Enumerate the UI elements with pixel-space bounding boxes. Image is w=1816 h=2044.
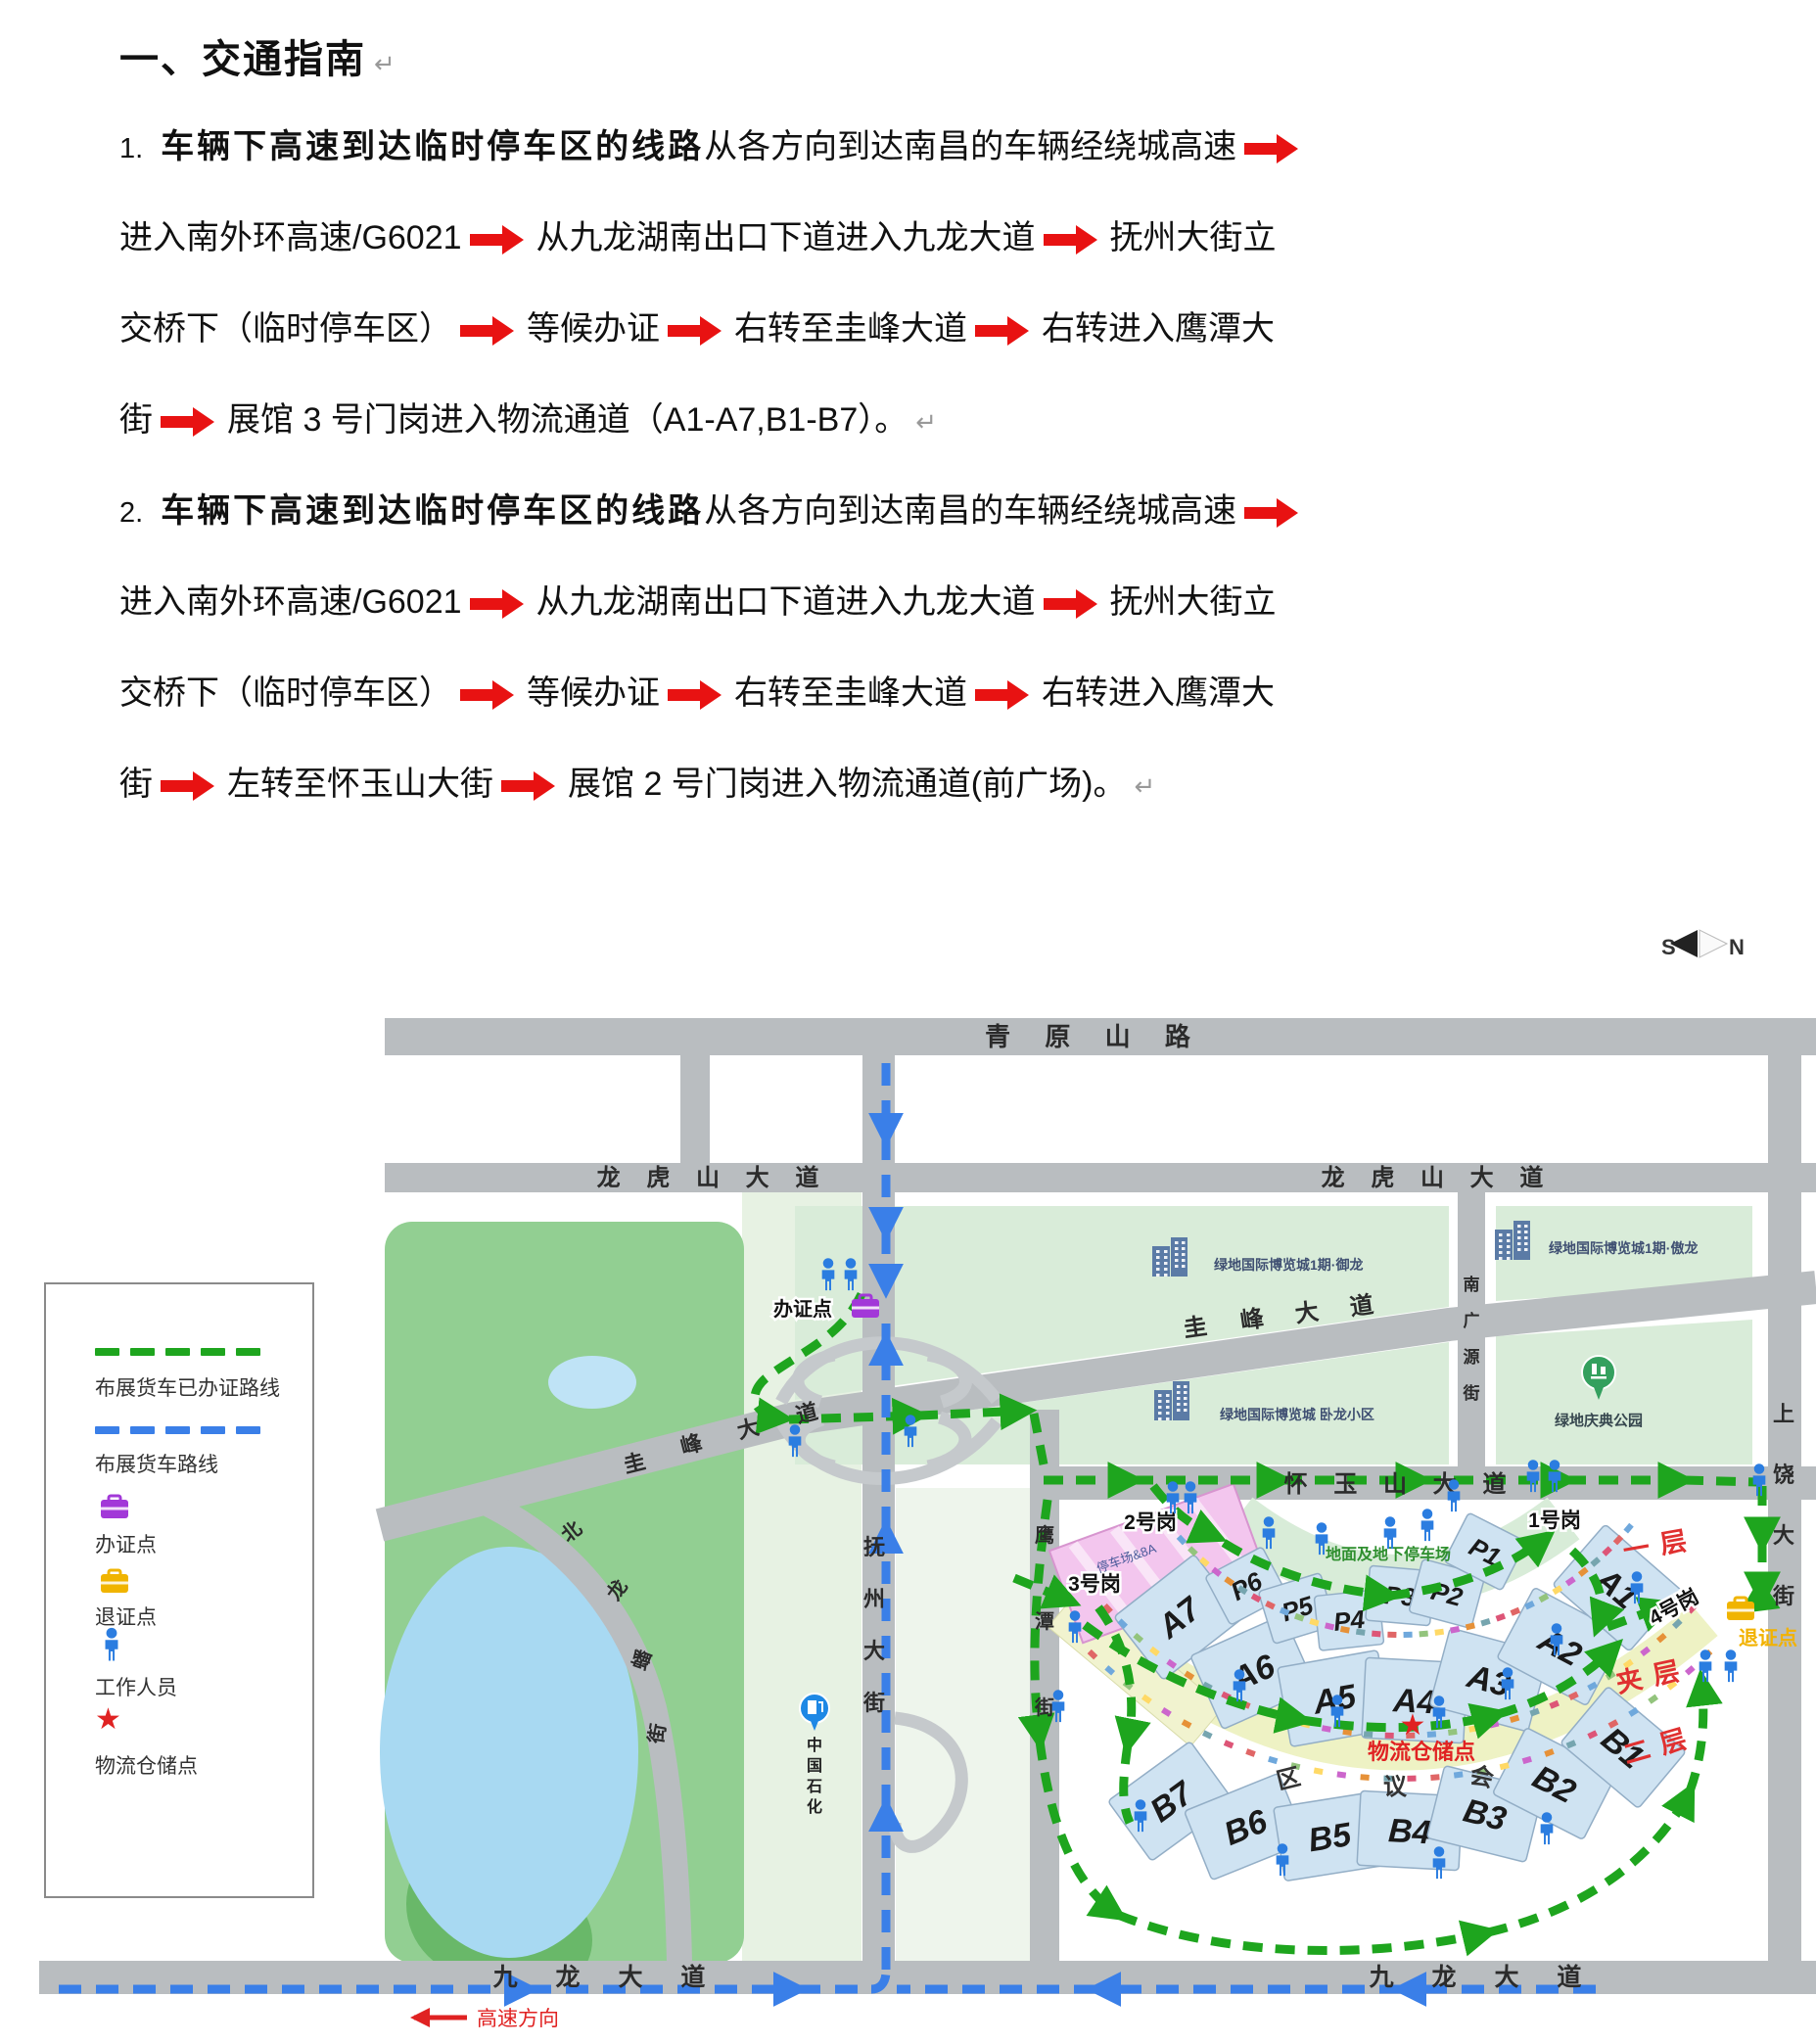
briefcase-icon (101, 1496, 128, 1518)
road-yingtan-street (1030, 1410, 1059, 1963)
road-label: 街 (643, 1722, 670, 1746)
booth-dot (1407, 1776, 1416, 1782)
booth-dot (1480, 1618, 1490, 1626)
map-text: 绿地庆典公园 (1555, 1412, 1643, 1429)
booth-dot (1404, 1632, 1413, 1638)
building-window (1175, 1241, 1179, 1244)
building-window (1164, 1262, 1168, 1265)
building-window (1156, 1256, 1160, 1259)
building-window (1156, 1262, 1160, 1265)
star-icon: ★ (95, 1705, 121, 1735)
road-label: 九 龙 大 道 (1369, 1963, 1598, 1991)
road-label: 道 (1348, 1291, 1375, 1322)
compass-south-label: S (1661, 935, 1676, 959)
building-window (1507, 1245, 1511, 1248)
booth-dot (1245, 1748, 1255, 1757)
building-window (1499, 1251, 1503, 1254)
booth-dot (1448, 1729, 1458, 1736)
building-window (1166, 1417, 1170, 1420)
booth-dot (1314, 1768, 1324, 1776)
building-window (1507, 1233, 1511, 1236)
booth-dot (1623, 1523, 1633, 1534)
building-window (1184, 1391, 1187, 1394)
building-window (1184, 1397, 1187, 1400)
staff-person-icon (1433, 1846, 1446, 1879)
dash-segment (201, 1426, 225, 1434)
residential-block (1496, 1320, 1752, 1464)
building-window (1166, 1394, 1170, 1397)
case-purple-icon (95, 1490, 134, 1530)
booth-dot (1434, 1629, 1444, 1636)
dash-segment (130, 1426, 155, 1434)
building-window (1177, 1391, 1181, 1394)
booth-dot (1419, 1631, 1427, 1638)
booth-dot (1360, 1774, 1369, 1781)
dash-segment (165, 1348, 190, 1356)
staff-person-icon (1421, 1509, 1434, 1541)
map-text: 绿地国际博览城1期·御龙 (1214, 1257, 1363, 1273)
road-label: 峰 (1238, 1305, 1266, 1335)
road-label: 青 原 山 路 (985, 1022, 1204, 1051)
staff-person-icon (1384, 1516, 1397, 1549)
booth-dot (1364, 1731, 1373, 1738)
booth-dot (1387, 1632, 1396, 1638)
building-window (1184, 1403, 1187, 1406)
building-window (1175, 1259, 1179, 1262)
case-yellow-icon (95, 1564, 134, 1604)
building-window (1507, 1251, 1511, 1254)
building-window (1182, 1259, 1186, 1262)
building-window (1158, 1394, 1162, 1397)
booth-dot (1336, 1771, 1346, 1778)
building-window (1158, 1406, 1162, 1409)
building-window (1166, 1400, 1170, 1403)
compass-north-label: N (1729, 935, 1745, 959)
legend-label: 物流仓储点 (95, 1750, 198, 1780)
building-window (1166, 1412, 1170, 1415)
booth-dot (1224, 1740, 1234, 1748)
building-window (1177, 1385, 1181, 1388)
road-label: 九 龙 大 道 (492, 1963, 722, 1991)
floor-label: 一 层 (1621, 1526, 1692, 1566)
briefcase-icon (101, 1570, 128, 1593)
building-window (1166, 1406, 1170, 1409)
building-window (1177, 1403, 1181, 1406)
booth-dot (1454, 1771, 1464, 1778)
booth-dot (1427, 1731, 1436, 1738)
booth-dot (1385, 1733, 1394, 1739)
building-window (1164, 1268, 1168, 1271)
road-label: 大 (1293, 1299, 1321, 1328)
building-window (1517, 1225, 1521, 1228)
booth-dot (1496, 1613, 1506, 1622)
legend-label: 办证点 (95, 1529, 157, 1558)
compass: S N (1661, 930, 1745, 959)
building-window (1164, 1250, 1168, 1253)
map-text: 物流仓储点 (1368, 1740, 1475, 1764)
map-legend: 布展货车已办证路线布展货车路线办证点退证点工作人员★物流仓储点 (44, 1282, 314, 1898)
building-window (1158, 1417, 1162, 1420)
building-window (1517, 1231, 1521, 1233)
dash-segment (236, 1348, 260, 1356)
building-window (1507, 1257, 1511, 1260)
road-shangrao-street (1768, 1055, 1801, 1963)
gate-label-1号岗: 1号岗 (1528, 1509, 1581, 1532)
building-window (1184, 1385, 1187, 1388)
building-window (1177, 1397, 1181, 1400)
legend-label: 布展货车路线 (95, 1449, 218, 1478)
gate-label-3号岗: 3号岗 (1068, 1572, 1121, 1596)
briefcase-line (101, 1582, 128, 1585)
dash-segment (201, 1348, 225, 1356)
pond (548, 1356, 636, 1409)
map-text: 绿地国际博览城1期·傲龙 (1549, 1240, 1698, 1256)
building-window (1156, 1250, 1160, 1253)
building-window (1517, 1248, 1521, 1251)
blue-dash-route-icon (95, 1421, 271, 1439)
building-window (1524, 1231, 1528, 1233)
road-connector (680, 1055, 710, 1163)
map-text: ★ (1400, 1709, 1426, 1742)
building-window (1158, 1400, 1162, 1403)
building-window (1499, 1257, 1503, 1260)
building-window (1182, 1247, 1186, 1250)
dash-segment (165, 1426, 190, 1434)
green-dash-route-icon (95, 1343, 271, 1361)
booth-dot (1685, 1665, 1696, 1675)
building-window (1156, 1274, 1160, 1277)
booth-dot (1648, 1695, 1658, 1704)
building-window (1524, 1225, 1528, 1228)
legend-label: 布展货车已办证路线 (95, 1372, 280, 1402)
building-window (1177, 1409, 1181, 1412)
building-window (1499, 1233, 1503, 1236)
map-text: 议 (1383, 1774, 1408, 1800)
map-text: 高速方向 (477, 2008, 559, 2030)
map-text: 退证点 (1739, 1627, 1797, 1649)
staff-person-icon (1700, 1649, 1712, 1682)
building-window (1175, 1247, 1179, 1250)
hall-label: B5 (1306, 1816, 1355, 1860)
road-label: 龙 虎 山 大 道 (597, 1164, 829, 1191)
building-window (1182, 1241, 1186, 1244)
building-window (1499, 1245, 1503, 1248)
building-window (1158, 1412, 1162, 1415)
building-window (1164, 1274, 1168, 1277)
person-icon (95, 1625, 128, 1669)
booth-dot (1372, 1631, 1380, 1638)
building-window (1517, 1242, 1521, 1245)
legend-label: 工作人员 (95, 1672, 177, 1701)
building-window (1184, 1409, 1187, 1412)
map-text: 绿地国际博览城 卧龙小区 (1220, 1407, 1374, 1422)
dash-segment (130, 1348, 155, 1356)
gate-label-2号岗: 2号岗 (1124, 1510, 1177, 1534)
road-label: 圭 (1182, 1314, 1209, 1343)
building-window (1175, 1265, 1179, 1268)
booth-dot (1510, 1607, 1520, 1616)
dash-segment (95, 1348, 119, 1356)
briefcase-line (852, 1307, 879, 1310)
hall-label: B4 (1387, 1812, 1431, 1851)
building-window (1156, 1268, 1160, 1271)
building-window (1507, 1239, 1511, 1242)
building-window (1499, 1239, 1503, 1242)
briefcase-line (1727, 1609, 1754, 1612)
staff-person-icon (1541, 1812, 1554, 1844)
road-label: 怀 玉 山 大 道 (1284, 1470, 1516, 1498)
building-window (1524, 1248, 1528, 1251)
building-window (1182, 1265, 1186, 1268)
booth-dot (1268, 1756, 1278, 1764)
building-window (1182, 1253, 1186, 1256)
building-window (1524, 1242, 1528, 1245)
building-window (1175, 1253, 1179, 1256)
booth-dot (1430, 1774, 1439, 1781)
staff-person-icon (1725, 1649, 1738, 1682)
road-label: 龙 虎 山 大 道 (1322, 1164, 1554, 1191)
staff-person-icon (1448, 1479, 1461, 1511)
booth-dot (1356, 1629, 1366, 1636)
building-window (1517, 1236, 1521, 1239)
briefcase-line (101, 1508, 128, 1510)
dash-segment (95, 1426, 119, 1434)
map-text: 办证点 (773, 1297, 832, 1321)
building-window (1524, 1236, 1528, 1239)
dash-segment (236, 1426, 260, 1434)
building-window (1164, 1256, 1168, 1259)
compass-white-triangle-icon (1700, 930, 1727, 957)
booth-dot (1202, 1730, 1213, 1739)
